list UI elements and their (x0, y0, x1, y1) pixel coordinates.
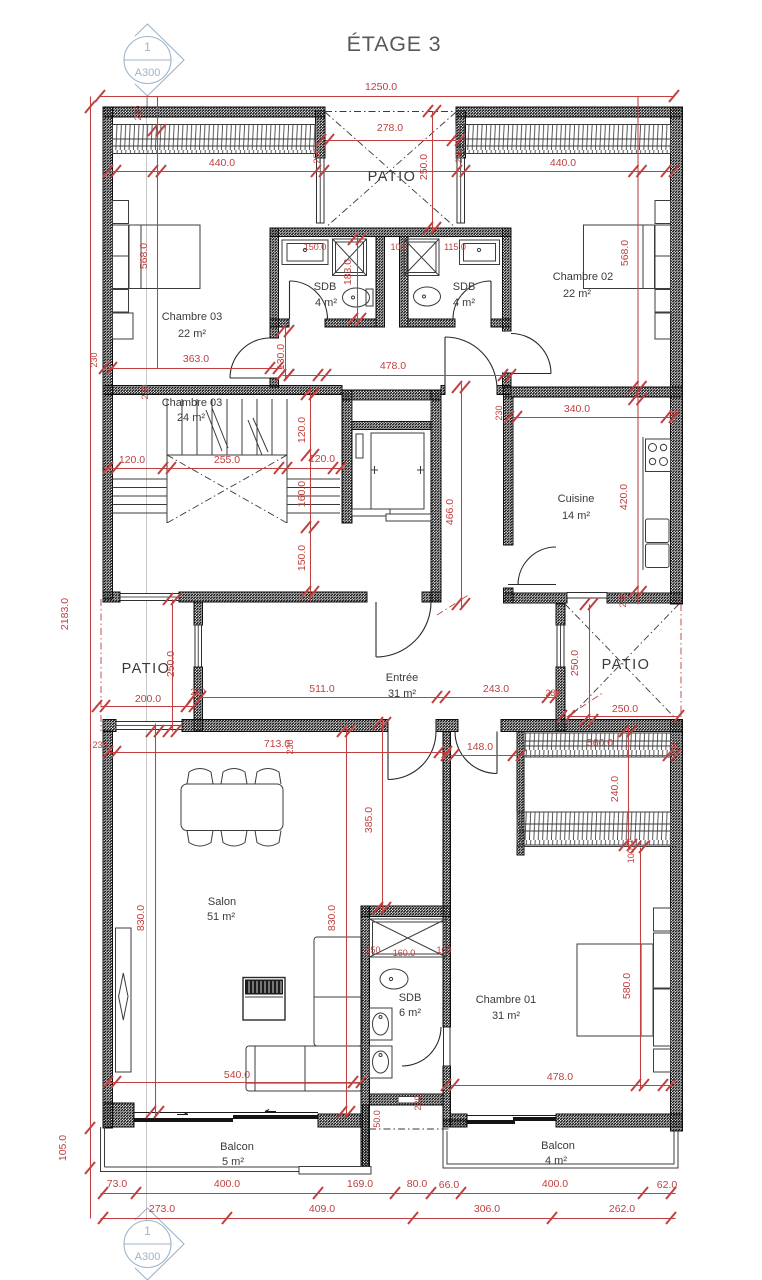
svg-text:1250.0: 1250.0 (365, 81, 397, 93)
svg-text:243.0: 243.0 (483, 683, 509, 695)
svg-text:4 m²: 4 m² (453, 297, 475, 309)
svg-text:Balcon: Balcon (220, 1141, 254, 1153)
svg-text:4 m²: 4 m² (315, 297, 337, 309)
svg-text:230: 230 (140, 384, 150, 399)
svg-text:169.0: 169.0 (347, 1178, 373, 1190)
svg-text:A300: A300 (135, 67, 161, 79)
svg-text:PATIO: PATIO (368, 169, 417, 185)
svg-text:262.0: 262.0 (609, 1203, 635, 1215)
svg-text:Chambre 03: Chambre 03 (162, 311, 223, 323)
svg-text:PATIO: PATIO (602, 657, 651, 673)
svg-text:6 m²: 6 m² (399, 1007, 421, 1019)
svg-text:440.0: 440.0 (550, 157, 576, 169)
svg-text:22 m²: 22 m² (178, 328, 206, 340)
svg-text:115.0: 115.0 (444, 242, 466, 252)
svg-text:120.0: 120.0 (119, 454, 145, 466)
svg-text:568.0: 568.0 (619, 240, 631, 266)
svg-text:100.0: 100.0 (626, 841, 636, 864)
svg-text:409.0: 409.0 (309, 1203, 335, 1215)
svg-text:230: 230 (494, 405, 504, 420)
svg-text:466.0: 466.0 (444, 499, 456, 525)
svg-text:1: 1 (144, 1224, 151, 1238)
svg-text:230: 230 (413, 1095, 423, 1110)
svg-text:Entrée: Entrée (386, 672, 418, 684)
svg-text:Salon: Salon (208, 896, 236, 908)
svg-text:440.0: 440.0 (209, 157, 235, 169)
svg-text:Chambre 03: Chambre 03 (162, 397, 223, 409)
svg-text:14 m²: 14 m² (562, 510, 590, 522)
svg-text:250.0: 250.0 (612, 703, 638, 715)
svg-text:230: 230 (668, 408, 678, 423)
svg-text:73.0: 73.0 (107, 1178, 128, 1190)
svg-text:250: 250 (312, 148, 322, 163)
svg-text:100: 100 (436, 945, 451, 955)
svg-text:Balcon: Balcon (541, 1140, 575, 1152)
svg-text:540.0: 540.0 (224, 1069, 250, 1081)
svg-text:230: 230 (190, 687, 205, 697)
svg-text:ÉTAGE 3: ÉTAGE 3 (347, 31, 442, 56)
svg-text:80.0: 80.0 (407, 1178, 428, 1190)
svg-text:148.0: 148.0 (467, 741, 493, 753)
svg-text:Cuisine: Cuisine (558, 493, 595, 505)
svg-text:830.0: 830.0 (326, 905, 338, 931)
svg-text:230: 230 (618, 592, 628, 607)
svg-text:130.0: 130.0 (275, 344, 287, 370)
svg-text:120.0: 120.0 (296, 417, 308, 443)
svg-text:511.0: 511.0 (309, 683, 335, 695)
svg-text:150: 150 (365, 945, 380, 955)
svg-text:160.0: 160.0 (393, 948, 416, 958)
svg-text:SDB: SDB (399, 992, 422, 1004)
svg-text:363.0: 363.0 (183, 353, 209, 365)
svg-text:2183.0: 2183.0 (59, 598, 71, 630)
svg-text:278.0: 278.0 (377, 122, 403, 134)
svg-text:230: 230 (92, 740, 107, 750)
svg-text:568.0: 568.0 (138, 243, 150, 269)
svg-text:150.0: 150.0 (304, 242, 327, 252)
svg-text:183.0: 183.0 (342, 259, 354, 285)
svg-text:4 m²: 4 m² (545, 1155, 567, 1167)
svg-text:A300: A300 (135, 1251, 161, 1263)
svg-text:200.0: 200.0 (135, 693, 161, 705)
svg-text:100: 100 (390, 242, 405, 252)
svg-text:250: 250 (454, 148, 464, 163)
svg-text:560.0: 560.0 (587, 737, 613, 749)
svg-text:250.0: 250.0 (569, 650, 581, 676)
svg-text:31 m²: 31 m² (388, 688, 416, 700)
svg-text:400.0: 400.0 (214, 1178, 240, 1190)
svg-text:830.0: 830.0 (135, 905, 147, 931)
svg-text:Chambre 02: Chambre 02 (553, 271, 614, 283)
svg-text:50.0: 50.0 (372, 1110, 382, 1128)
svg-text:478.0: 478.0 (547, 1071, 573, 1083)
svg-text:SDB: SDB (453, 281, 476, 293)
svg-text:340.0: 340.0 (564, 403, 590, 415)
svg-text:31 m²: 31 m² (492, 1010, 520, 1022)
svg-text:273.0: 273.0 (149, 1203, 175, 1215)
svg-text:385.0: 385.0 (363, 807, 375, 833)
svg-text:PATIO: PATIO (122, 661, 171, 677)
svg-text:240.0: 240.0 (609, 776, 621, 802)
svg-text:22 m²: 22 m² (563, 288, 591, 300)
svg-text:306.0: 306.0 (474, 1203, 500, 1215)
svg-text:120.0: 120.0 (309, 453, 335, 465)
svg-text:230: 230 (670, 740, 680, 755)
svg-text:Chambre 01: Chambre 01 (476, 994, 537, 1006)
svg-text:250.0: 250.0 (418, 154, 430, 180)
svg-text:478.0: 478.0 (380, 360, 406, 372)
svg-text:230: 230 (89, 352, 99, 367)
svg-text:400.0: 400.0 (542, 1178, 568, 1190)
svg-text:5 m²: 5 m² (222, 1156, 244, 1168)
svg-text:255.0: 255.0 (214, 454, 240, 466)
svg-text:105.0: 105.0 (57, 1135, 69, 1161)
svg-text:230: 230 (285, 739, 295, 754)
svg-text:420.0: 420.0 (618, 484, 630, 510)
svg-text:SDB: SDB (314, 281, 337, 293)
svg-text:1: 1 (144, 40, 151, 54)
svg-text:230: 230 (133, 105, 143, 120)
svg-text:160.0: 160.0 (296, 481, 308, 507)
svg-text:51 m²: 51 m² (207, 911, 235, 923)
svg-text:580.0: 580.0 (621, 973, 633, 999)
svg-text:24 m²: 24 m² (177, 412, 205, 424)
svg-text:62.0: 62.0 (657, 1179, 678, 1191)
svg-text:66.0: 66.0 (439, 1179, 460, 1191)
svg-text:150.0: 150.0 (296, 545, 308, 571)
svg-text:230: 230 (545, 688, 560, 698)
